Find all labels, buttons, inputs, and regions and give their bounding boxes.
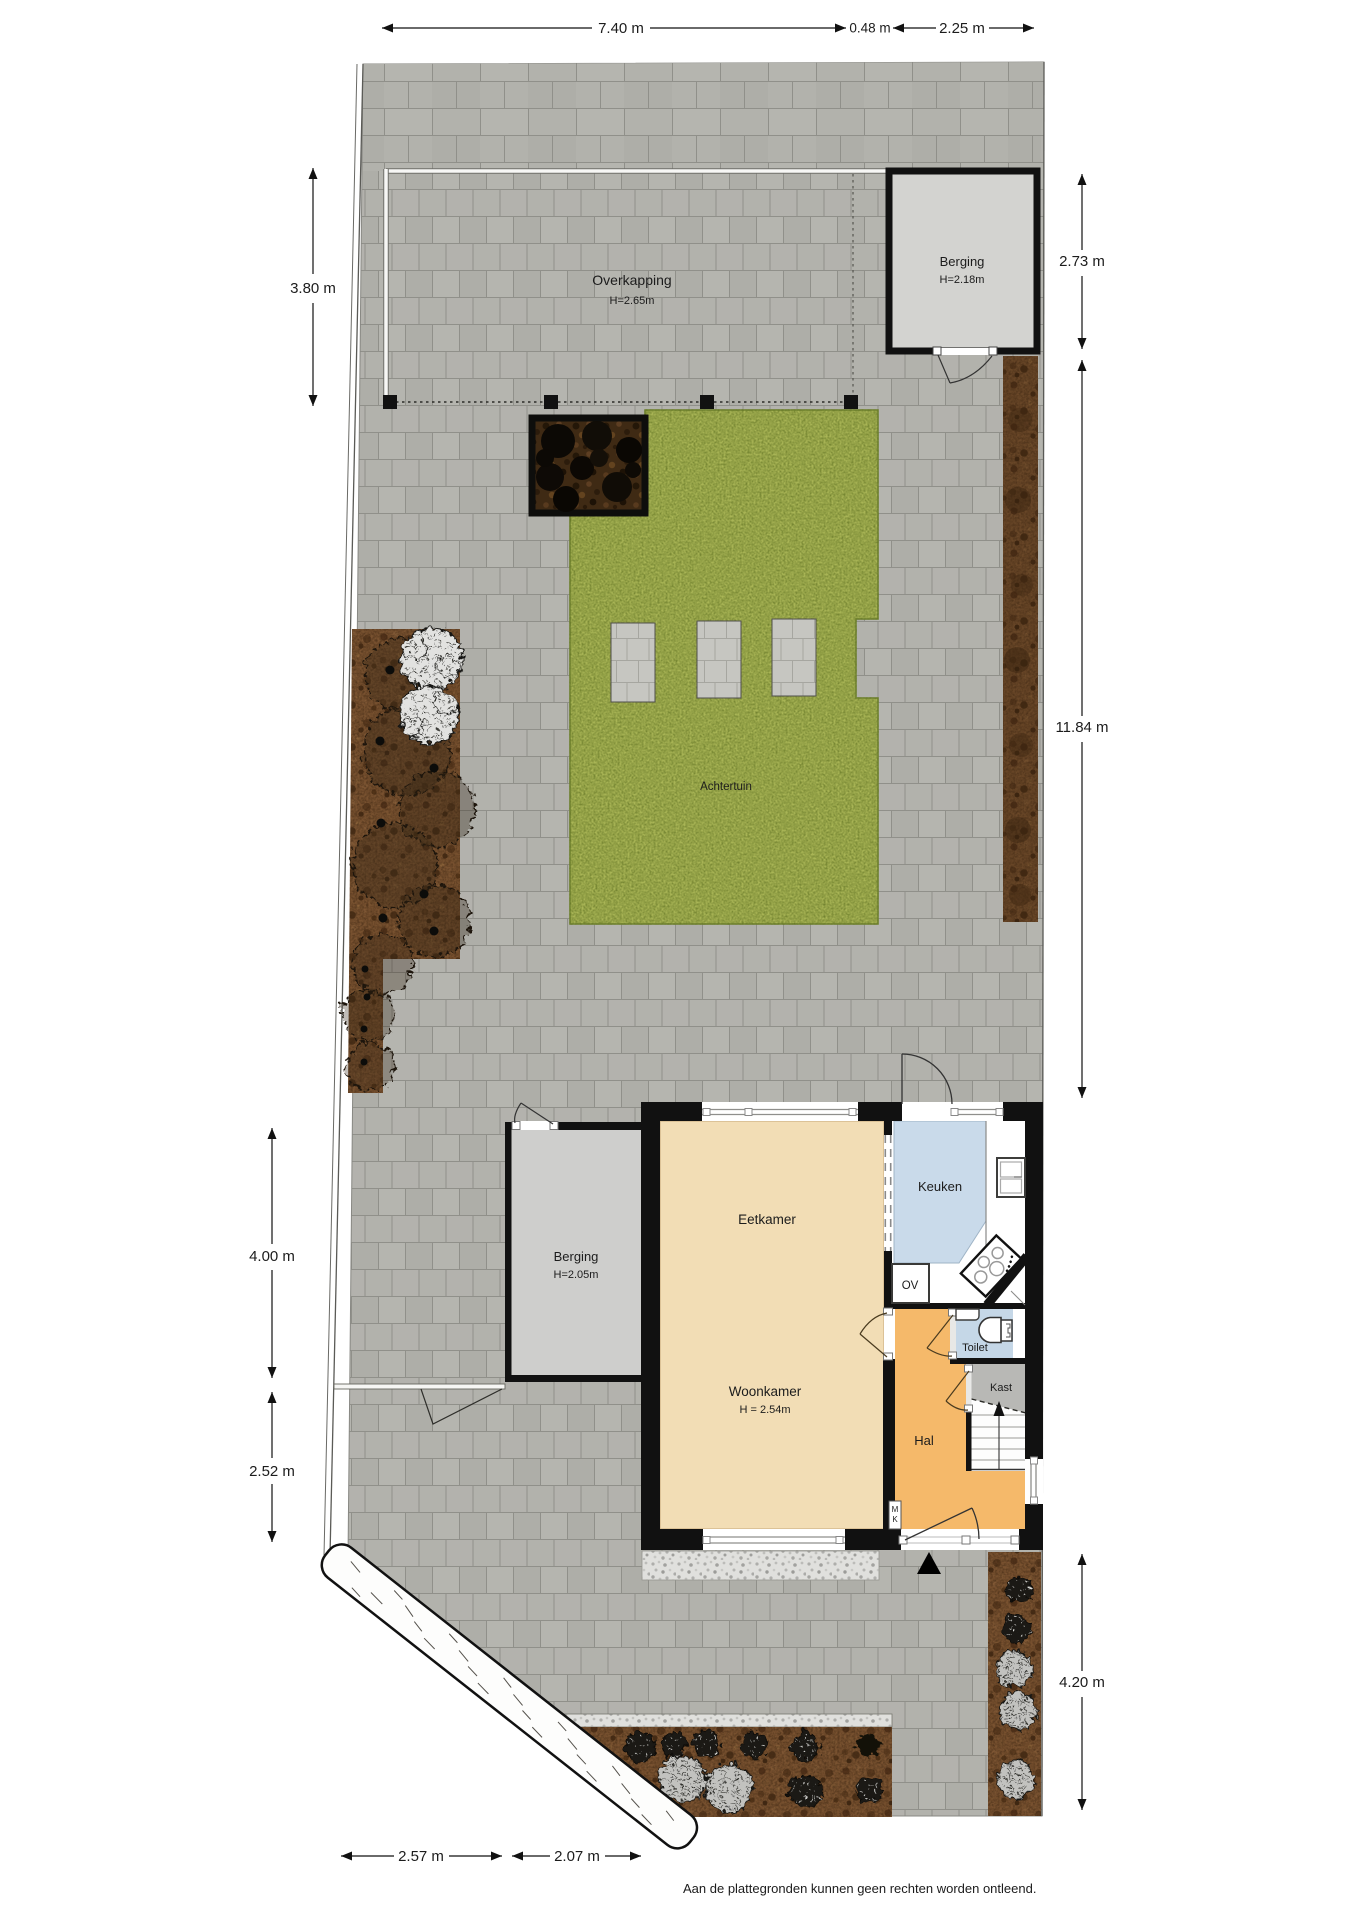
svg-text:2.25 m: 2.25 m (939, 20, 985, 37)
svg-text:Berging: Berging (940, 254, 985, 269)
svg-text:Keuken: Keuken (918, 1179, 962, 1194)
svg-text:M: M (892, 1505, 899, 1514)
svg-text:0.48 m: 0.48 m (849, 21, 890, 36)
svg-text:11.84 m: 11.84 m (1055, 719, 1108, 736)
svg-text:H=2.05m: H=2.05m (554, 1269, 599, 1281)
svg-text:2.07 m: 2.07 m (554, 1848, 600, 1865)
svg-text:Overkapping: Overkapping (592, 272, 671, 288)
svg-text:Eetkamer: Eetkamer (738, 1212, 796, 1227)
svg-text:4.00 m: 4.00 m (249, 1248, 295, 1265)
svg-text:2.52 m: 2.52 m (249, 1463, 295, 1480)
svg-text:Aan de plattegronden kunnen ge: Aan de plattegronden kunnen geen rechten… (683, 1881, 1036, 1896)
svg-text:7.40 m: 7.40 m (598, 20, 644, 37)
svg-text:Kast: Kast (990, 1382, 1012, 1394)
svg-text:K: K (892, 1515, 898, 1524)
svg-text:H=2.18m: H=2.18m (940, 274, 985, 286)
svg-text:H = 2.54m: H = 2.54m (739, 1404, 790, 1416)
svg-text:4.20 m: 4.20 m (1059, 1674, 1105, 1691)
svg-text:2.73 m: 2.73 m (1059, 253, 1105, 270)
svg-text:2.57 m: 2.57 m (398, 1848, 444, 1865)
svg-text:OV: OV (902, 1280, 919, 1292)
svg-text:Achtertuin: Achtertuin (700, 781, 752, 793)
svg-text:H=2.65m: H=2.65m (610, 295, 655, 307)
svg-text:Toilet: Toilet (962, 1342, 988, 1354)
svg-text:Woonkamer: Woonkamer (729, 1384, 802, 1399)
svg-text:3.80 m: 3.80 m (290, 280, 336, 297)
svg-text:Berging: Berging (554, 1249, 599, 1264)
svg-text:Hal: Hal (914, 1433, 934, 1448)
